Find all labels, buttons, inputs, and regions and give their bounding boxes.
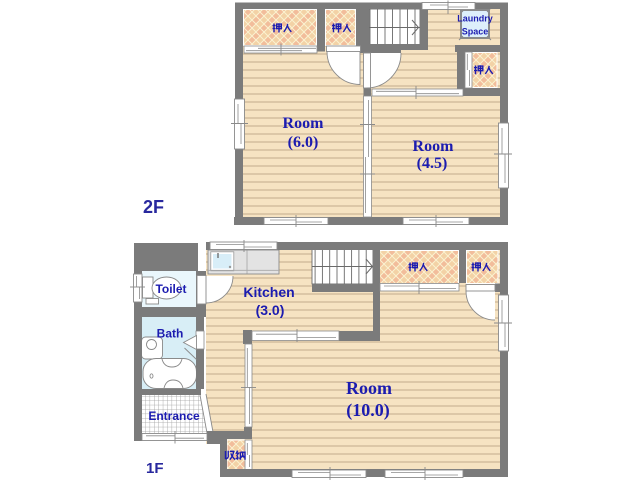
svg-text:(4.5): (4.5) [417,155,448,172]
svg-text:1F: 1F [146,460,164,477]
svg-text:Room: Room [283,115,325,132]
svg-text:(3.0): (3.0) [256,302,285,318]
svg-text:Space: Space [462,27,489,37]
svg-text:2F: 2F [143,197,164,217]
svg-text:Room: Room [346,378,392,398]
svg-text:(10.0): (10.0) [346,400,390,421]
svg-text:Laundry: Laundry [457,14,493,24]
svg-text:(6.0): (6.0) [288,134,319,151]
svg-text:Bath: Bath [157,327,184,341]
svg-text:Kitchen: Kitchen [243,284,294,300]
svg-text:Toilet: Toilet [155,282,186,296]
svg-text:Room: Room [413,138,455,155]
svg-text:Entrance: Entrance [148,409,200,423]
